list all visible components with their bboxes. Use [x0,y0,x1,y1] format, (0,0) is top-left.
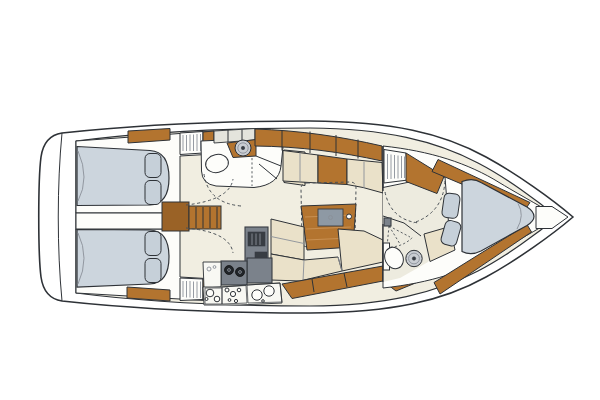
galley-sink [214,296,220,302]
corridor [76,213,163,229]
burner [236,268,245,277]
counter-left [203,262,221,288]
twin-sink [264,286,274,296]
basin-drain [241,146,244,149]
basin-drain [412,257,415,260]
floor-plan-svg [0,0,600,400]
hull-locker [127,287,170,301]
galley-sink [206,289,214,297]
shower-control [384,218,391,226]
table-knob [347,214,352,219]
fridge-lid [248,232,265,246]
yacht-interior-plan [0,0,600,400]
stowed-leaf [318,155,347,185]
sink-dot [237,288,241,292]
hull-locker [128,129,170,144]
twin-sink [252,290,262,300]
sink-dot [205,298,208,301]
burner [225,266,234,275]
sink-dot [228,299,231,302]
table-insert [318,209,343,226]
pillow [145,181,161,205]
settee-cushion [283,151,318,184]
sink-dot [225,288,229,292]
steps-treads [189,206,221,229]
pillow [145,154,161,178]
pillow [145,232,161,256]
steps-base [162,202,189,231]
sink-dot [230,291,235,296]
pillow [441,193,460,219]
companionway-steps [162,202,221,231]
sink-dot [234,299,237,302]
galley-unit [247,258,272,283]
pillow [145,259,161,283]
sink-dot [262,300,265,303]
